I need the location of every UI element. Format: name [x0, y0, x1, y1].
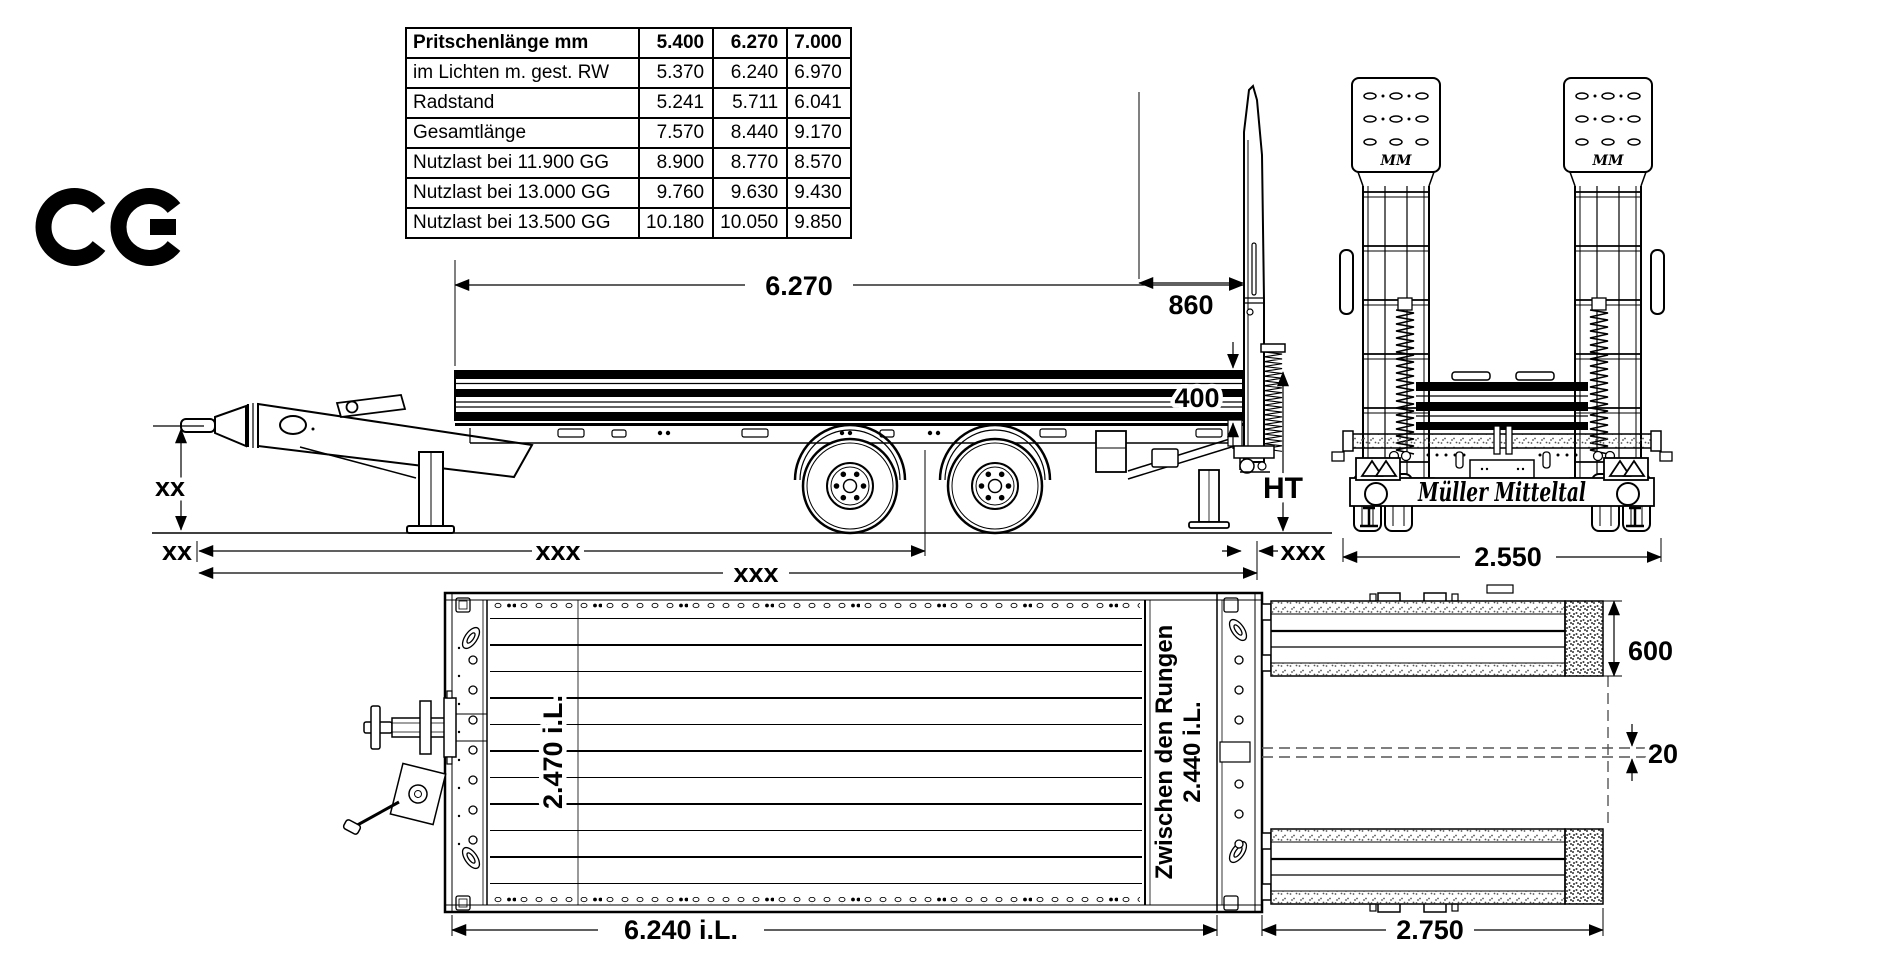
side-marker-left [1332, 452, 1344, 461]
dim-front-overhang-label: xx [162, 536, 192, 566]
dim-eye-to-axles-label: xxx [535, 536, 580, 566]
between-stanchions-label: Zwischen den Rungen [1151, 625, 1178, 880]
ce-mark-icon: CE [44, 196, 176, 258]
dim-rear-section-label: 860 [1168, 290, 1213, 320]
license-plate [1470, 460, 1534, 478]
top-view: 2.470 i.L. Zwischen den Rungen 2.440 i.L… [343, 585, 1678, 945]
dim-between-stanchions-label: 2.440 i.L. [1179, 701, 1206, 802]
rivet-row-bottom [492, 897, 1140, 904]
dim-inner-length-label: 6.240 i.L. [624, 915, 738, 945]
side-view-dimensions [153, 92, 1283, 580]
dim-overall-width-label: 2.550 [1474, 542, 1542, 572]
ramp-spring [1264, 352, 1282, 451]
dim-ramp-length-label: 2.750 [1396, 915, 1464, 945]
dim-bed-length-label: 6.270 [765, 271, 833, 301]
dim-inner-width-label: 2.470 i.L. [538, 695, 568, 809]
wheel [803, 439, 897, 533]
spring-left [1396, 310, 1414, 454]
rear-lamp-right [1617, 483, 1639, 505]
toolbox [1096, 431, 1126, 472]
rear-view: Müller Mitteltal 2.550 [1332, 78, 1672, 572]
ramp-plan-top [1271, 601, 1603, 676]
crank-handle [343, 763, 446, 835]
side-view: 6.270 860 400 HT xx xx xxx xxx xxx [152, 86, 1332, 588]
rear-support-leg [1189, 470, 1229, 528]
dim-centerline-offset-label: 20 [1648, 739, 1678, 769]
dim-loading-height-label: HT [1263, 472, 1303, 505]
side-marker-right [1660, 452, 1672, 461]
technical-drawing: MM [0, 0, 1877, 960]
ramp-handle-right [1651, 250, 1664, 314]
dim-board-height-label: 400 [1174, 383, 1219, 413]
trailer-datasheet: Pritschenlänge mm 5.400 6.270 7.000 im L… [0, 0, 1877, 960]
spring-right [1590, 310, 1608, 454]
brand-logo: Müller Mitteltal [1417, 478, 1586, 508]
wheel [948, 439, 1042, 533]
tail-lamp [1152, 449, 1178, 467]
tandem-axle [795, 425, 1050, 533]
rear-panel: Müller Mitteltal [1332, 452, 1672, 527]
crossbar [1343, 426, 1661, 454]
dim-overall-length-label: xxx [733, 558, 778, 588]
centerlines [1262, 676, 1648, 829]
rivet-row-top [492, 602, 1140, 609]
dim-rear-detail-label: xxx [1280, 536, 1325, 566]
rear-lamp-left [1365, 483, 1387, 505]
rear-boards [1416, 372, 1588, 430]
dim-ramp-width-label: 600 [1628, 636, 1673, 666]
ramp-handle-left [1340, 250, 1353, 314]
ramp-plan-bottom [1271, 829, 1603, 904]
side-boards [455, 370, 1243, 421]
dim-coupling-height-label: xx [155, 472, 185, 502]
